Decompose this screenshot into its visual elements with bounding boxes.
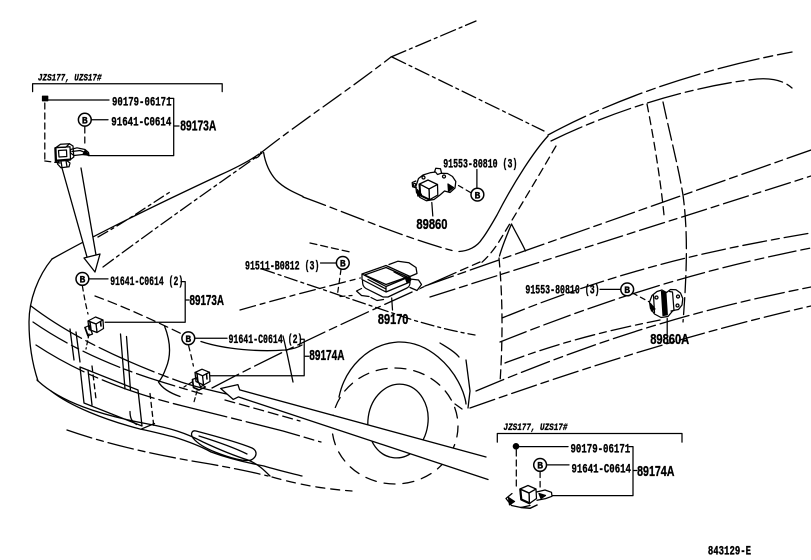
svg-text:91641-C0614 (2): 91641-C0614 (2) [110,274,183,289]
svg-text:91641-C0614 (2): 91641-C0614 (2) [229,332,303,347]
svg-text:91553-80810 (3): 91553-80810 (3) [443,157,517,172]
svg-text:90179-06171: 90179-06171 [112,95,172,110]
svg-text:B: B [340,260,346,271]
svg-text:91641-C0614: 91641-C0614 [111,114,171,129]
svg-text:89173A: 89173A [190,293,225,309]
svg-text:B: B [475,191,481,202]
svg-text:JZS177, UZS17#: JZS177, UZS17# [504,422,568,434]
svg-text:B: B [624,286,630,297]
svg-text:91553-80810 (3): 91553-80810 (3) [525,282,599,297]
svg-text:B: B [537,462,543,473]
svg-text:89860: 89860 [416,217,447,233]
svg-text:89174A: 89174A [637,464,675,480]
svg-text:91641-C0614: 91641-C0614 [572,461,632,476]
svg-text:89860A: 89860A [650,332,689,348]
svg-text:JZS177, UZS17#: JZS177, UZS17# [38,73,102,85]
svg-text:B: B [80,276,86,287]
svg-text:B: B [82,116,88,127]
svg-text:89173A: 89173A [180,118,216,134]
svg-text:89174A: 89174A [309,348,345,364]
svg-text:843129-E: 843129-E [708,544,751,559]
svg-text:90179-06171: 90179-06171 [571,441,631,456]
svg-text:B: B [185,335,191,346]
svg-text:91511-B0812 (3): 91511-B0812 (3) [245,258,320,273]
svg-text:89170: 89170 [378,312,409,328]
